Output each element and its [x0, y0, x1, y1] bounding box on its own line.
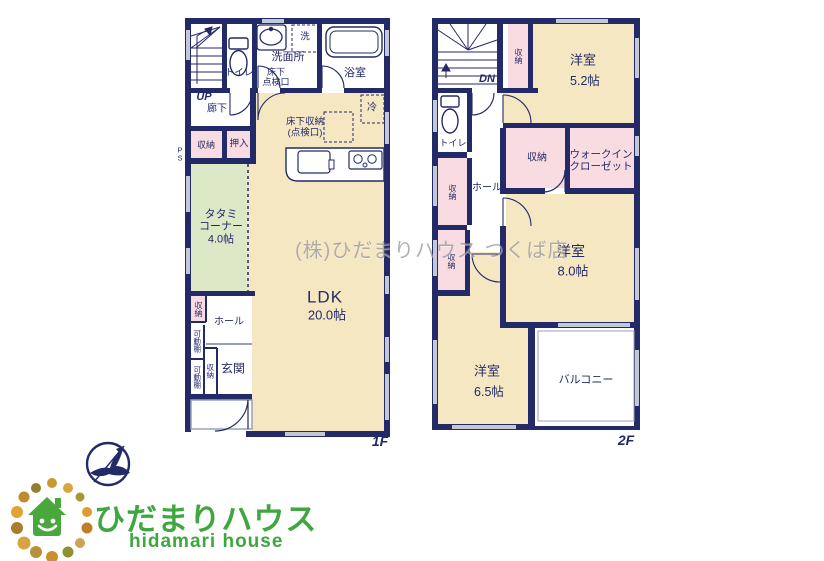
- logo-dot: [11, 506, 23, 518]
- room-label-hall-2f: ホール: [472, 182, 502, 193]
- room-label-storage-center: 収納: [527, 152, 547, 163]
- room-label-hallway: 廊下: [207, 103, 227, 114]
- underfloor-storage-label: 床下収納 (点検口): [286, 117, 324, 138]
- logo-dot: [47, 478, 57, 488]
- underfloor-hatch-label: 床下 点検口: [262, 67, 289, 87]
- floorplan-page: UP 廊下 トイレ 洗面所 洗 床下 点検口 浴室 冷 床下収納 (点検口) P…: [0, 0, 824, 561]
- pipe-space-label: P S: [177, 147, 182, 162]
- room-label-entrance: 玄関: [221, 362, 245, 375]
- logo-dot: [46, 551, 58, 561]
- room-label-washroom: 洗面所: [272, 51, 305, 63]
- room-label-balcony: バルコニー: [559, 374, 614, 386]
- logo-house-icon: [28, 497, 66, 536]
- room-label-bedroom3: 洋室: [474, 365, 500, 380]
- north-compass-icon: [87, 443, 130, 485]
- room-label-entry-storage-upper: 収納: [194, 301, 202, 317]
- logo-dot: [18, 537, 31, 550]
- floor1-tag: 1F: [372, 434, 388, 450]
- watermark-text: (株)ひだまりハウス つくば店: [295, 234, 568, 263]
- room-label-entry-storage-lower: 収納: [206, 364, 214, 379]
- room-label-bath: 浴室: [344, 67, 366, 79]
- room-label-tatami: タタミ コーナー 4.0帖: [199, 209, 243, 246]
- logo-mark: [11, 478, 93, 561]
- kitchen-sink: [298, 151, 330, 173]
- shelf1-label: 可動棚: [193, 330, 201, 353]
- room-label-bedroom1: 洋室: [570, 54, 596, 69]
- logo-dot: [30, 546, 42, 558]
- logo-dot: [82, 507, 92, 517]
- brand-name-english: hidamari house: [129, 531, 283, 553]
- fridge-label: 冷: [367, 102, 377, 113]
- floor2-tag: 2F: [618, 433, 634, 449]
- stairs-dn-label: DN: [479, 73, 495, 85]
- room-label-bedroom1-size: 5.2帖: [570, 74, 600, 88]
- room-label-oshiire: 押入: [229, 140, 248, 151]
- room-label-ldk: LDK: [307, 287, 343, 306]
- room-label-toilet-1f: トイレ: [225, 69, 254, 80]
- bathtub-fixture: [326, 27, 382, 57]
- room-label-bedroom3-size: 6.5帖: [474, 385, 504, 399]
- washbasin-fixture: [257, 25, 286, 50]
- logo-dot: [75, 538, 85, 548]
- room-label-ldk-size: 20.0帖: [308, 309, 346, 324]
- stairs-up-label: UP: [196, 91, 211, 103]
- shelf2-label: 可動棚: [193, 366, 201, 389]
- logo-dot: [82, 523, 93, 534]
- logo-dot: [31, 483, 41, 493]
- room-label-bedroom2-size: 8.0帖: [557, 265, 588, 280]
- room-label-storage-1f: 収納: [197, 140, 215, 150]
- floor2-plan: [432, 18, 640, 430]
- toilet-fixture-2f: [441, 96, 459, 133]
- logo-dot: [63, 483, 73, 493]
- logo-dot: [76, 493, 85, 502]
- porch: [191, 400, 252, 429]
- floorplan-drawing: [0, 0, 824, 561]
- room-label-walkin-closet: ウォークイン クローゼット: [570, 149, 633, 173]
- room-label-storage-left1: 収納: [448, 184, 456, 200]
- logo-dot: [19, 492, 30, 503]
- kitchen-counter: [286, 148, 384, 181]
- room-label-toilet-2f: トイレ: [439, 138, 466, 148]
- room-ldk: [252, 93, 390, 437]
- washer-label: 洗: [300, 33, 310, 44]
- room-label-closet-strip: 収納: [514, 48, 522, 64]
- logo-dot: [11, 522, 23, 534]
- room-label-hall-1f: ホール: [214, 316, 244, 327]
- logo-dot: [63, 547, 74, 558]
